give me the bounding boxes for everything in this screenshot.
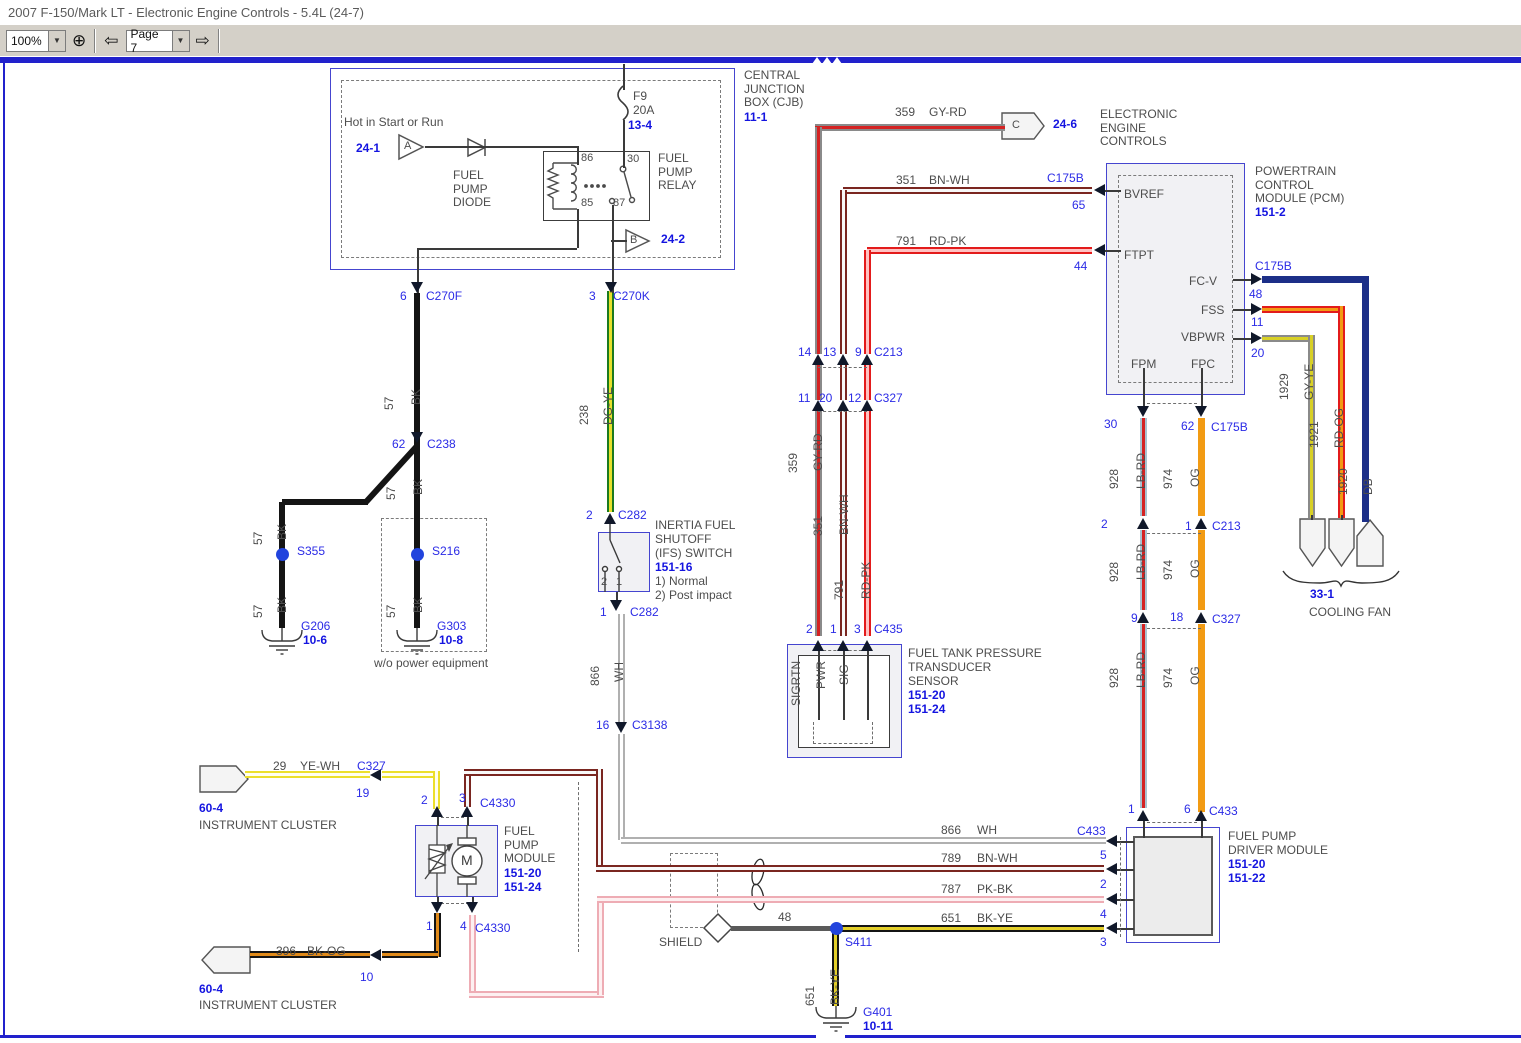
vlabel-bk-ye: BK-YE: [828, 969, 842, 1005]
label-2: 2: [1100, 878, 1107, 892]
dashed-line-11: [813, 722, 814, 744]
connector-arrow-27: [1094, 184, 1105, 196]
vlabel-1921: 1921: [1307, 421, 1321, 448]
label-11: 11: [798, 392, 810, 406]
label-driver-module: DRIVER MODULE: [1228, 844, 1328, 858]
label-c282: C282: [630, 606, 659, 620]
label-bn-wh: BN-WH: [929, 174, 970, 188]
wire-351-bnwh-h: [843, 187, 1092, 194]
dashed-line-12: [813, 743, 873, 744]
label-10-11: 10-11: [863, 1020, 893, 1034]
label-16: 16: [596, 719, 609, 733]
wire-1929-gyye-h: [1262, 335, 1312, 342]
line-1: [577, 146, 579, 165]
page-bottom-border: [845, 1035, 1521, 1038]
connector-arrow-16: [1195, 406, 1207, 417]
label-powertrain-control-module-pc: POWERTRAIN CONTROL MODULE (PCM): [1255, 165, 1344, 206]
wire-29-yewh-2: [382, 771, 437, 778]
splice-s355: [276, 548, 289, 561]
line-5: [623, 64, 625, 90]
line-11: [867, 648, 869, 720]
connector-arrow-21: [1137, 810, 1149, 821]
label-pk-bk: PK-BK: [977, 883, 1013, 897]
label-fss: FSS: [1201, 304, 1224, 318]
dashed-line-1: [818, 411, 867, 412]
label-bn-wh: BN-WH: [977, 852, 1018, 866]
line-6: [623, 120, 625, 168]
vlabel-rd-og: RD-OG: [1332, 408, 1346, 448]
label-351: 351: [896, 174, 916, 188]
label-fpc: FPC: [1191, 358, 1215, 372]
label-c4330: C4330: [480, 797, 515, 811]
wire-787-pkbk-h2: [597, 896, 1104, 903]
wire-48-shield-drain: [731, 926, 838, 931]
label-396: 396: [276, 945, 296, 959]
label-1: 1: [616, 576, 622, 590]
label-44: 44: [1074, 260, 1087, 274]
label-9: 9: [855, 346, 862, 360]
label-60-4: 60-4: [199, 802, 223, 816]
vlabel-dg-ye: DG-YE: [601, 387, 615, 425]
splice-s411: [830, 922, 843, 935]
line-8: [611, 240, 627, 242]
label-hot-in-start-or-run: Hot in Start or Run: [344, 116, 443, 130]
vlabel-og: OG: [1188, 468, 1202, 487]
wiring-diagram: Hot in Start or Run24-1FUEL PUMP DIODE86…: [0, 0, 1521, 1043]
connector-arrow-35: [466, 902, 478, 913]
dashed-line-5: [1147, 628, 1201, 629]
label-c3138: C3138: [632, 719, 667, 733]
label-inertia-fuel: INERTIA FUEL: [655, 519, 735, 533]
label-c327: C327: [357, 760, 386, 774]
vlabel-sig: SIG: [837, 664, 851, 685]
label-4: 4: [1100, 908, 1107, 922]
label-62: 62: [1181, 420, 1194, 434]
label-fc-v: FC-V: [1189, 275, 1217, 289]
wire-396-bkog-h1: [382, 951, 438, 958]
vlabel-974: 974: [1161, 560, 1175, 580]
page-continuation-notch: [832, 57, 842, 64]
vlabel-gy-rd: GY-RD: [811, 433, 825, 471]
vlabel-1929: 1929: [1277, 373, 1291, 400]
dashed-line-7: [441, 817, 464, 818]
label-14: 14: [798, 346, 811, 360]
connector-arrow-19: [1137, 612, 1149, 623]
wiring-diagram-viewer-window: 2007 F-150/Mark LT - Electronic Engine C…: [0, 0, 1521, 1043]
vlabel-lb-rd: LB-RD: [1134, 544, 1148, 580]
label-30: 30: [1104, 418, 1117, 432]
label-151-16: 151-16: [655, 561, 692, 575]
page-top-border: [0, 57, 1521, 63]
line-7: [612, 205, 614, 293]
vlabel-57: 57: [251, 605, 265, 618]
connector-arrow-24: [1106, 863, 1117, 875]
label-shutoff: SHUTOFF: [655, 533, 711, 547]
label-c327: C327: [1212, 613, 1241, 627]
diagram-symbols: [0, 0, 1521, 1043]
label-c282: C282: [618, 509, 647, 523]
label-2-post-impact: 2) Post impact: [655, 589, 732, 603]
vlabel-gy-ye: GY-YE: [1302, 364, 1316, 400]
label-c238: C238: [427, 438, 456, 452]
line-13: [1104, 250, 1121, 252]
label-6: 6: [400, 290, 407, 304]
wire-974-og-3: [1198, 624, 1205, 812]
connector-arrow-29: [1251, 273, 1262, 285]
label-60-4: 60-4: [199, 983, 223, 997]
vlabel-866: 866: [588, 666, 602, 686]
label-11: 11: [1251, 316, 1263, 330]
connector-arrow-37: [370, 949, 381, 961]
label-3: 3: [589, 290, 596, 304]
label-fuel-pump: FUEL PUMP: [1228, 830, 1296, 844]
wire-789-bnwh-h2: [596, 865, 1104, 872]
label-151-22: 151-22: [1228, 872, 1265, 886]
label-bvref: BVREF: [1124, 188, 1164, 202]
label-866: 866: [941, 824, 961, 838]
ground-g206-icon: [262, 628, 302, 654]
label-c4330: C4330: [475, 922, 510, 936]
label-1: 1: [600, 606, 607, 620]
vlabel-238: 238: [577, 405, 591, 425]
label-c175b: C175B: [1211, 421, 1248, 435]
vlabel-974: 974: [1161, 668, 1175, 688]
label-instrument-cluster: INSTRUMENT CLUSTER: [199, 819, 337, 833]
connector-arrow-26: [1106, 922, 1117, 934]
label-ifs-switch: (IFS) SWITCH: [655, 547, 732, 561]
vlabel-928: 928: [1107, 469, 1121, 489]
wire-359-gyrd-v1: [815, 127, 822, 354]
page-continuation-notch: [812, 57, 822, 64]
vlabel-791: 791: [832, 580, 846, 600]
label-13: 13: [823, 346, 836, 360]
dashed-line-8: [441, 903, 469, 904]
instrument-cluster-connector-icon: [200, 766, 248, 792]
label-1: 1: [1185, 520, 1192, 534]
label-ye-wh: YE-WH: [300, 760, 340, 774]
line-2: [577, 209, 579, 248]
label-c433: C433: [1077, 825, 1106, 839]
wo-power-equipment-dashed-box: [381, 518, 487, 652]
label-24-2: 24-2: [661, 233, 685, 247]
ground-g401-icon: [816, 1005, 856, 1031]
line-30: [1311, 515, 1313, 520]
label-a: A: [404, 140, 411, 154]
vlabel-bk: BK: [409, 389, 423, 405]
wire-651-bkye-h: [838, 925, 1104, 932]
label-10: 10: [360, 971, 373, 985]
label-87: 87: [613, 197, 625, 211]
wire-866-wh-h: [621, 837, 1106, 844]
label-fuel-pump-relay: FUEL PUMP RELAY: [658, 152, 696, 193]
label-c433: C433: [1209, 805, 1238, 819]
label-10-6: 10-6: [303, 634, 327, 648]
instrument-cluster-connector-icon: [202, 947, 250, 973]
vlabel-928: 928: [1107, 562, 1121, 582]
label-787: 787: [941, 883, 961, 897]
connector-arrow-2: [411, 432, 423, 443]
label-789: 789: [941, 852, 961, 866]
wire-359-gyrd-h: [815, 124, 1005, 131]
label-6: 6: [1184, 803, 1191, 817]
label-151-20: 151-20: [908, 689, 945, 703]
label-c213: C213: [874, 346, 903, 360]
line-17: [1143, 368, 1145, 409]
label-cooling-fan: COOLING FAN: [1309, 606, 1391, 620]
label-10-8: 10-8: [439, 634, 463, 648]
label-c213: C213: [1212, 520, 1241, 534]
line-12: [1104, 190, 1121, 192]
label-2: 2: [601, 576, 607, 590]
connector-arrow-18: [1195, 518, 1207, 529]
connector-arrow-33: [461, 806, 473, 817]
label-c175b: C175B: [1255, 260, 1292, 274]
wire-787-pkbk-v2: [597, 899, 604, 995]
label-c270f: C270F: [426, 290, 462, 304]
wire-1921-rdog-h: [1262, 306, 1342, 313]
label-shield: SHIELD: [659, 936, 702, 950]
label-c175b: C175B: [1047, 172, 1084, 186]
label-20: 20: [819, 392, 832, 406]
connector-arrow-3: [604, 513, 616, 524]
page-left-border: [3, 63, 5, 1037]
label-2: 2: [421, 794, 428, 808]
connector-arrow-13: [837, 640, 849, 651]
vlabel-lb-rd: LB-RD: [1134, 652, 1148, 688]
label-fuel-pump-module: FUEL PUMP MODULE: [504, 825, 555, 866]
label-48: 48: [778, 911, 791, 925]
connector-arrow-20: [1195, 612, 1207, 623]
vlabel-57: 57: [251, 532, 265, 545]
wire-866-wh-v2: [618, 734, 625, 840]
connector-arrow-25: [1106, 893, 1117, 905]
vlabel-651: 651: [803, 986, 817, 1006]
label-central-junction-box-cjb: CENTRAL JUNCTION BOX (CJB): [744, 69, 805, 110]
label-12: 12: [848, 392, 861, 406]
label-f9: F9: [633, 90, 647, 104]
connector-arrow-11: [861, 400, 873, 411]
line-31: [1341, 515, 1343, 520]
label-20: 20: [1251, 347, 1264, 361]
label-w-o-power-equipment: w/o power equipment: [374, 657, 488, 671]
vlabel-57: 57: [384, 605, 398, 618]
label-151-2: 151-2: [1255, 206, 1286, 220]
label-359: 359: [895, 106, 915, 120]
vlabel-359: 359: [786, 453, 800, 473]
offpage-connector-c-icon: [1002, 113, 1044, 139]
label-2: 2: [1101, 518, 1108, 532]
label-85: 85: [581, 197, 593, 211]
label-fuel-pump-diode: FUEL PUMP DIODE: [453, 169, 491, 210]
label-1: 1: [1128, 803, 1135, 817]
label-g303: G303: [437, 620, 466, 634]
dashed-line-9: [1120, 837, 1121, 937]
dashed-line-0: [818, 367, 867, 368]
connector-arrow-32: [431, 806, 443, 817]
label-1-normal: 1) Normal: [655, 575, 708, 589]
dashed-line-13: [872, 722, 873, 744]
label-transducer: TRANSDUCER: [908, 661, 991, 675]
label-wh: WH: [977, 824, 997, 838]
wire-789-bnwh-v2: [596, 769, 603, 871]
vlabel-bn-wh: BN-WH: [837, 494, 851, 535]
dashed-line-6: [1147, 822, 1197, 823]
label-24-6: 24-6: [1053, 118, 1077, 132]
label-s355: S355: [297, 545, 325, 559]
fpdm-inner-box: [1133, 836, 1213, 936]
cooling-fan-connectors-icon: [1300, 519, 1383, 566]
vlabel-57: 57: [384, 487, 398, 500]
vlabel-db: DB: [1361, 478, 1375, 495]
wire-29-yewh-v: [433, 771, 440, 809]
connector-arrow-4: [610, 600, 622, 611]
vlabel-bk: BK: [411, 597, 425, 613]
vlabel-bk: BK: [275, 597, 289, 613]
label-c: C: [1012, 119, 1020, 133]
wire-787-pkbk-h1: [469, 991, 604, 998]
label-11-1: 11-1: [744, 111, 767, 125]
label-62: 62: [392, 438, 405, 452]
wire-57-bk-branch-h: [282, 499, 368, 505]
label-bk-ye: BK-YE: [977, 912, 1013, 926]
vlabel-1920: 1920: [1336, 468, 1350, 495]
label-b: B: [630, 234, 637, 248]
dashed-line-3: [1147, 403, 1197, 404]
label-791: 791: [896, 235, 916, 249]
vlabel-og: OG: [1188, 666, 1202, 685]
connector-arrow-12: [812, 640, 824, 651]
dashed-line-4: [1147, 533, 1201, 534]
wire-1920-db-h: [1262, 276, 1368, 283]
page-continuation-notch: [822, 57, 832, 64]
label-g401: G401: [863, 1006, 892, 1020]
vlabel-og: OG: [1188, 559, 1202, 578]
wire-974-og-1: [1198, 418, 1205, 516]
connector-arrow-8: [861, 354, 873, 365]
fuel-pump-module-box: [415, 825, 498, 897]
connector-arrow-5: [615, 722, 627, 733]
wire-351-bnwh-v1: [840, 190, 847, 354]
label-rd-pk: RD-PK: [929, 235, 966, 249]
wire-791-rdpk-v3: [864, 408, 871, 636]
label-g206: G206: [301, 620, 330, 634]
connector-arrow-17: [1137, 518, 1149, 529]
label-fuel-tank-pressure: FUEL TANK PRESSURE: [908, 647, 1042, 661]
label-1: 1: [830, 623, 837, 637]
label-fpm: FPM: [1131, 358, 1156, 372]
label-gy-rd: GY-RD: [929, 106, 967, 120]
connector-arrow-28: [1094, 244, 1105, 256]
label-ftpt: FTPT: [1124, 249, 1154, 263]
connector-arrow-31: [1251, 332, 1262, 344]
label-c435: C435: [874, 623, 903, 637]
cooling-fan-brace-icon: [1283, 571, 1399, 586]
label-2: 2: [586, 509, 593, 523]
dashed-line-10: [578, 782, 579, 952]
label-3: 3: [1100, 936, 1107, 950]
label-651: 651: [941, 912, 961, 926]
vlabel-rd-pk: RD-PK: [859, 562, 873, 599]
connector-arrow-23: [1106, 835, 1117, 847]
vlabel-974: 974: [1161, 469, 1175, 489]
vlabel-lb-rd: LB-RD: [1134, 453, 1148, 489]
label-29: 29: [273, 760, 286, 774]
label-151-20: 151-20: [504, 867, 541, 881]
label-151-24: 151-24: [908, 703, 945, 717]
vlabel-wh: WH: [612, 662, 626, 682]
label-electronic-engine-controls: ELECTRONIC ENGINE CONTROLS: [1100, 108, 1177, 149]
vlabel-57: 57: [382, 397, 396, 410]
label-m: M: [461, 854, 473, 868]
label-151-24: 151-24: [504, 881, 541, 895]
vlabel-351: 351: [811, 516, 825, 536]
splice-s216: [411, 548, 424, 561]
label-bk-og: BK-OG: [307, 945, 346, 959]
label-86: 86: [581, 152, 593, 166]
connector-arrow-7: [837, 354, 849, 365]
label-s411: S411: [845, 936, 872, 950]
vlabel-bk: BK: [411, 479, 425, 495]
label-2: 2: [806, 623, 813, 637]
label-c327: C327: [874, 392, 903, 406]
label-1: 1: [426, 920, 433, 934]
connector-arrow-14: [861, 640, 873, 651]
connector-arrow-30: [1251, 303, 1262, 315]
line-0: [425, 146, 577, 148]
vlabel-sigrtn: SIGRTN: [789, 661, 803, 706]
label-9: 9: [1131, 612, 1138, 626]
wire-791-rdpk-v1: [864, 250, 871, 354]
label-48: 48: [1249, 288, 1262, 302]
label-33-1: 33-1: [1310, 588, 1334, 602]
label-s216: S216: [432, 545, 460, 559]
connector-arrow-15: [1137, 406, 1149, 417]
label-24-1: 24-1: [356, 142, 380, 156]
vlabel-bk: BK: [275, 524, 289, 540]
line-3: [417, 248, 577, 250]
connector-arrow-22: [1195, 810, 1207, 821]
label-3: 3: [459, 792, 466, 806]
label-vbpwr: VBPWR: [1181, 331, 1225, 345]
label-sensor: SENSOR: [908, 675, 959, 689]
page-bottom-border: [0, 1035, 816, 1038]
label-3: 3: [854, 623, 861, 637]
connector-arrow-0: [411, 282, 423, 293]
wire-57-bk-upper: [414, 293, 420, 443]
vlabel-928: 928: [1107, 668, 1121, 688]
label-20a: 20A: [633, 104, 654, 118]
label-5: 5: [1100, 849, 1107, 863]
line-18: [1201, 368, 1203, 409]
label-30: 30: [627, 153, 639, 167]
label-18: 18: [1170, 611, 1183, 625]
connector-arrow-34: [431, 902, 443, 913]
label-13-4: 13-4: [628, 119, 652, 133]
wire-789-bnwh-h1: [464, 769, 603, 776]
label-151-20: 151-20: [1228, 858, 1265, 872]
label-65: 65: [1072, 199, 1085, 213]
label-4: 4: [460, 920, 467, 934]
label-instrument-cluster: INSTRUMENT CLUSTER: [199, 999, 337, 1013]
label-c270k: C270K: [613, 290, 650, 304]
vlabel-pwr: PWR: [814, 661, 828, 689]
label-19: 19: [356, 787, 369, 801]
